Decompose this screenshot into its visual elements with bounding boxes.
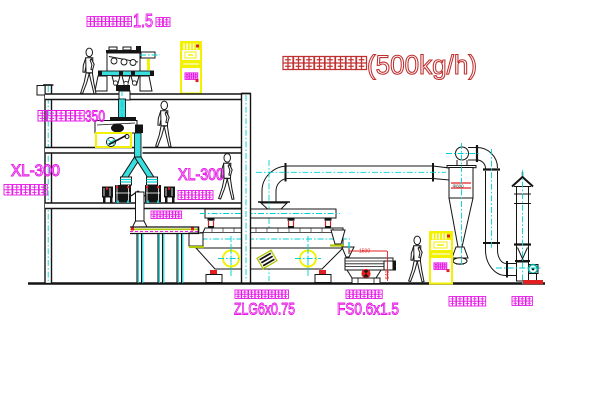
svg-text:(500kg/h): (500kg/h) — [367, 50, 477, 80]
svg-text:1500: 1500 — [359, 249, 370, 255]
svg-text:XL-300: XL-300 — [178, 166, 224, 184]
svg-text:XL-300: XL-300 — [11, 162, 60, 180]
svg-text:FS0.6x1.5: FS0.6x1.5 — [337, 300, 399, 319]
svg-text:350: 350 — [85, 109, 105, 126]
svg-text:540: 540 — [385, 270, 391, 279]
svg-text:1.5: 1.5 — [133, 11, 153, 31]
svg-text:ZLG6x0.75: ZLG6x0.75 — [234, 300, 295, 319]
svg-text:Φ800: Φ800 — [453, 184, 465, 189]
